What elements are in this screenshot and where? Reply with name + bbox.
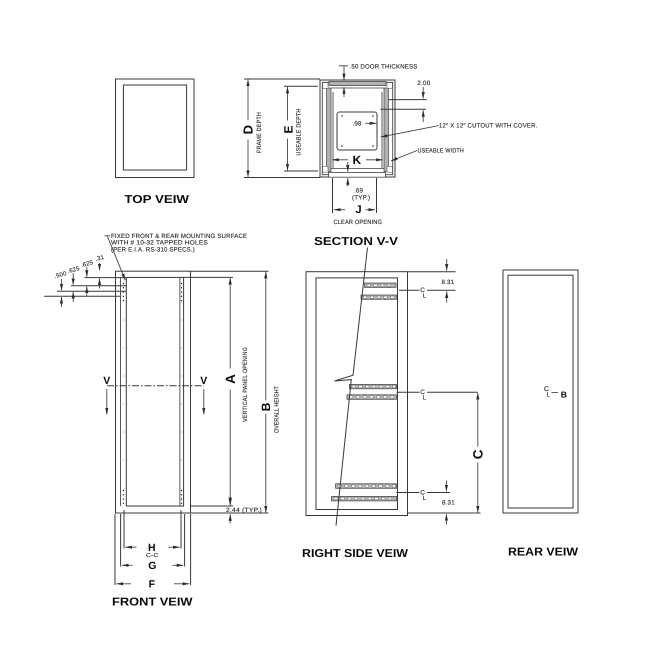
svg-text:FRONT VEIW: FRONT VEIW (112, 597, 193, 609)
svg-text:RIGHT SIDE VEIW: RIGHT SIDE VEIW (302, 548, 408, 560)
svg-text:12″ X 12″ CUTOUT WITH COVER.: 12″ X 12″ CUTOUT WITH COVER. (439, 122, 538, 129)
svg-text:CLEAR OPENING: CLEAR OPENING (334, 219, 383, 226)
svg-text:L: L (423, 293, 427, 300)
svg-text:B: B (561, 389, 567, 399)
svg-text:8.31: 8.31 (442, 279, 455, 286)
svg-text:F: F (149, 579, 156, 591)
svg-text:J: J (356, 204, 362, 216)
svg-text:TOP VEIW: TOP VEIW (124, 194, 189, 206)
svg-text:E: E (281, 125, 295, 133)
svg-text:K: K (353, 153, 362, 167)
svg-text:USEABLE DEPTH: USEABLE DEPTH (295, 109, 302, 156)
svg-text:L: L (423, 395, 427, 402)
svg-text:USEABLE WIDTH: USEABLE WIDTH (418, 147, 465, 154)
svg-text:OVERALL HEIGHT: OVERALL HEIGHT (273, 386, 280, 433)
svg-text:G: G (148, 560, 156, 572)
svg-text:C: C (471, 449, 486, 459)
svg-text:L: L (423, 495, 427, 502)
svg-text:D: D (240, 125, 255, 134)
svg-text:WITH # 10-32 TAPPED HOLES: WITH # 10-32 TAPPED HOLES (111, 239, 208, 246)
svg-text:8.31: 8.31 (442, 499, 455, 506)
svg-text:A: A (223, 374, 238, 384)
svg-text:(PER E.I.A. RS-310 SPECS.): (PER E.I.A. RS-310 SPECS.) (111, 247, 195, 254)
svg-text:B: B (259, 402, 273, 411)
svg-text:C-C: C-C (146, 553, 159, 559)
svg-text:FRAME DEPTH: FRAME DEPTH (256, 112, 263, 153)
svg-text:.98: .98 (353, 121, 363, 128)
svg-text:SECTION V-V: SECTION V-V (314, 236, 398, 248)
svg-text:2.44 (TYP.): 2.44 (TYP.) (226, 507, 262, 514)
svg-text:REAR VEIW: REAR VEIW (508, 547, 578, 559)
svg-text:2.00: 2.00 (417, 80, 430, 87)
svg-text:VERTICAL PANEL OPENING: VERTICAL PANEL OPENING (242, 347, 249, 422)
svg-text:.50 DOOR THICKNESS: .50 DOOR THICKNESS (350, 64, 418, 71)
svg-text:(TYP.): (TYP.) (352, 194, 370, 201)
svg-text:L: L (547, 392, 551, 399)
